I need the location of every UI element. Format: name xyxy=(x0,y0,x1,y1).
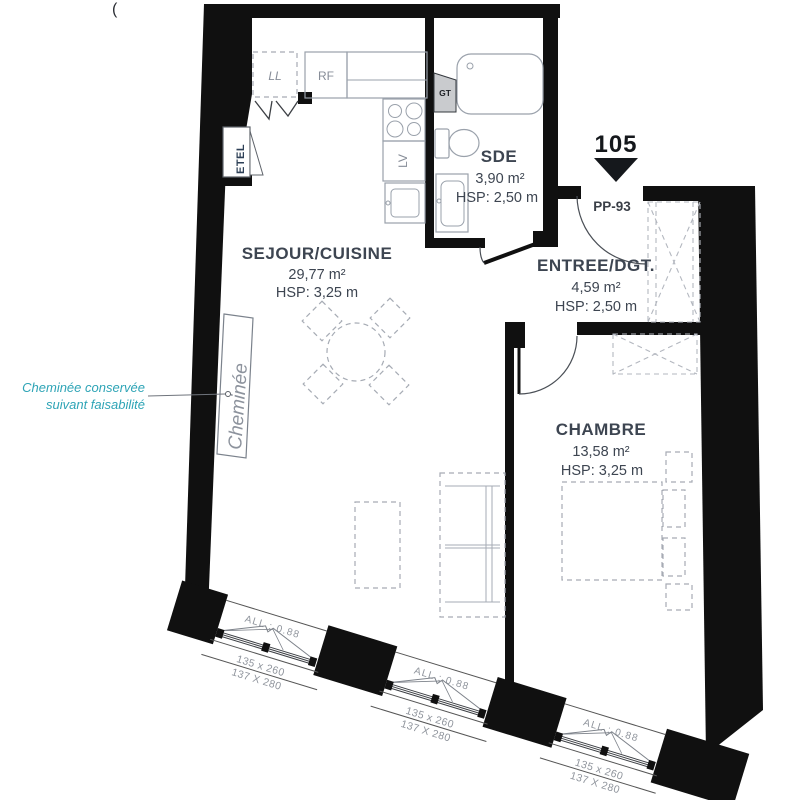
sde-door-arc xyxy=(480,247,484,263)
fireplace-note-line1: Cheminée conservée xyxy=(22,380,145,395)
room-area-sejour: 29,77 m² xyxy=(288,267,345,283)
nightstand xyxy=(666,584,692,610)
chambre-door-arc xyxy=(519,336,577,394)
entry-door-label: PP-93 xyxy=(593,199,631,214)
room-area-entree: 4,59 m² xyxy=(571,280,620,296)
wall-sejour-chambre xyxy=(505,322,514,692)
counter-outline xyxy=(347,52,427,98)
walls xyxy=(184,4,763,755)
room-hsp-sejour: HSP: 3,25 m xyxy=(276,285,358,301)
wall-sde-right xyxy=(543,18,558,247)
technical-duct-label: GT xyxy=(439,88,452,98)
stray-mark: ( xyxy=(112,1,118,18)
shower-drain xyxy=(467,63,473,69)
cooktop-burners xyxy=(387,103,422,137)
bottom-facade: ALL : 0.88 135 x 260 137 X 280 ALL : 0.8… xyxy=(159,581,749,800)
washbasin-faucet xyxy=(437,199,441,203)
wall-facade-pier-2 xyxy=(483,677,567,748)
fridge-label: RF xyxy=(318,69,334,83)
dining-table xyxy=(327,323,385,381)
kitchen: LL RF LV xyxy=(253,52,427,223)
sde-door-leaf xyxy=(484,243,538,263)
washing-machine-label: LL xyxy=(268,69,281,83)
chair xyxy=(370,298,410,338)
room-name-sde: SDE xyxy=(481,147,517,166)
sofa-cushions xyxy=(445,486,500,602)
toilet-bowl xyxy=(449,130,479,157)
room-hsp-sde: HSP: 2,50 m xyxy=(456,190,538,206)
wall-entree-chambre-right xyxy=(577,322,703,335)
fireplace-note-line2: suivant faisabilité xyxy=(46,397,145,412)
chair xyxy=(369,365,409,405)
room-labels: SEJOUR/CUISINE 29,77 m² HSP: 3,25 m SDE … xyxy=(242,147,655,479)
chair xyxy=(302,301,342,341)
room-area-sde: 3,90 m² xyxy=(475,171,524,187)
doors xyxy=(480,196,646,394)
sink-bowl xyxy=(391,189,419,217)
coffee-table xyxy=(355,502,400,588)
bed xyxy=(562,482,662,580)
room-name-sejour: SEJOUR/CUISINE xyxy=(242,244,393,263)
storage xyxy=(613,202,700,374)
etel-flap xyxy=(250,131,263,175)
bifold-door-right xyxy=(276,101,298,116)
bifold-door-left xyxy=(255,101,272,119)
pillow xyxy=(663,538,685,576)
room-area-chambre: 13,58 m² xyxy=(572,444,629,460)
floor-plan-canvas: ( ALL : 0.88 xyxy=(0,0,809,800)
room-hsp-entree: HSP: 2,50 m xyxy=(555,299,637,315)
dishwasher-label: LV xyxy=(396,154,410,168)
chair xyxy=(303,364,343,404)
wall-facade-pier-1 xyxy=(313,625,397,696)
room-name-chambre: CHAMBRE xyxy=(556,420,646,439)
floor-plan-drawing: ( ALL : 0.88 xyxy=(0,0,809,800)
etel-panel: ETEL xyxy=(223,127,263,177)
entry-marker: 105 PP-93 xyxy=(593,131,638,214)
wall-sde-bottom-left xyxy=(425,238,485,248)
furniture xyxy=(302,298,692,617)
room-name-entree: ENTREE/DGT. xyxy=(537,256,655,275)
wall-right xyxy=(698,186,763,755)
sink-faucet xyxy=(386,201,390,205)
entry-arrow-icon xyxy=(594,158,638,182)
wall-corner-pier xyxy=(222,6,252,130)
wall-top xyxy=(204,4,560,18)
toilet-tank xyxy=(435,129,449,158)
wall-facade-corner-right xyxy=(651,729,750,800)
room-hsp-chambre: HSP: 3,25 m xyxy=(561,463,643,479)
unit-number: 105 xyxy=(594,131,637,158)
pillow xyxy=(663,490,685,527)
nightstand xyxy=(666,452,692,482)
etel-label: ETEL xyxy=(235,144,247,174)
